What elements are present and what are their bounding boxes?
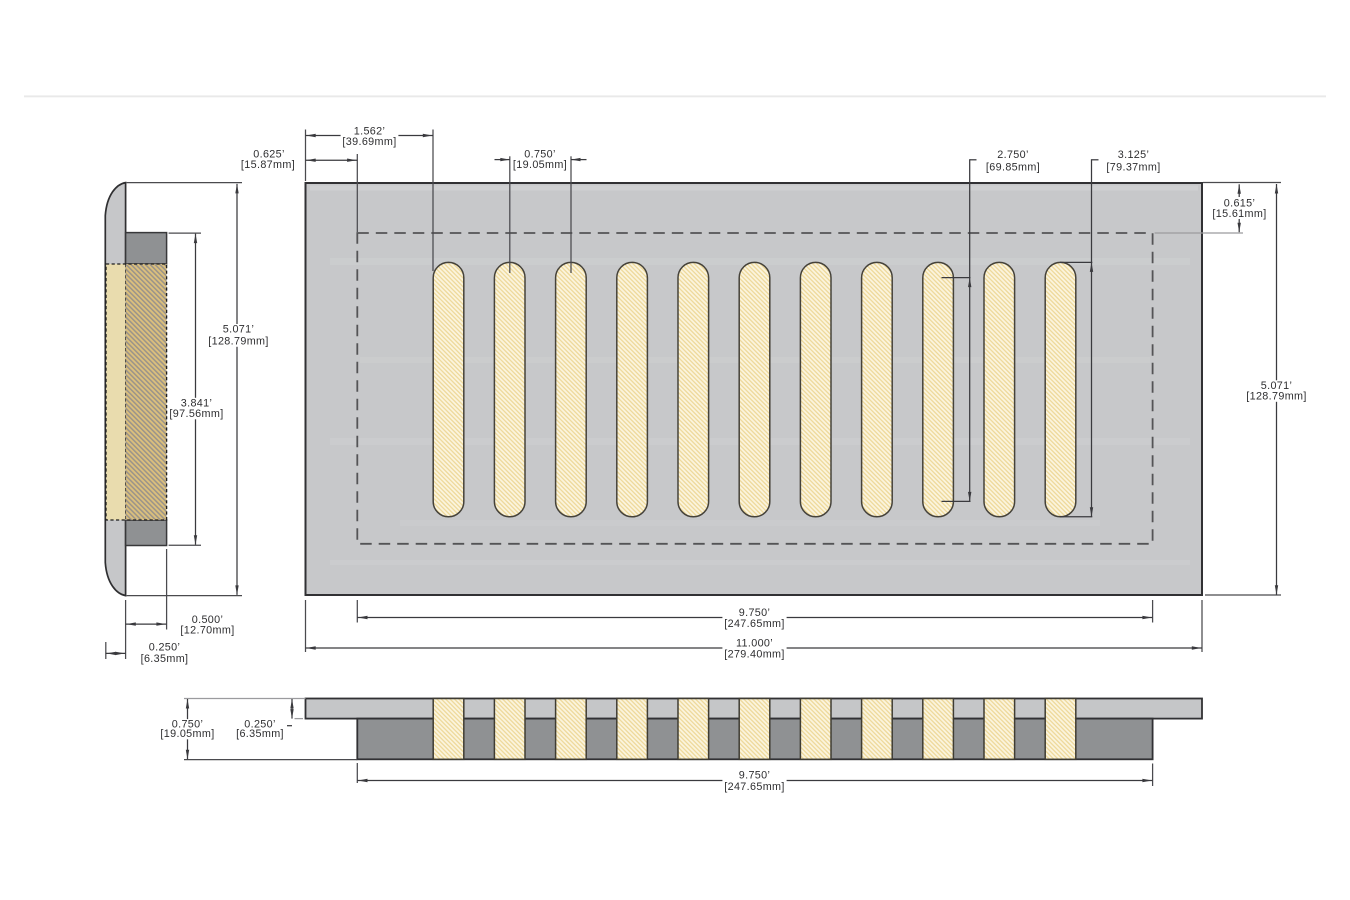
svg-text:[97.56mm]: [97.56mm] [169,408,223,420]
svg-text:[19.05mm]: [19.05mm] [513,159,567,171]
svg-text:[15.87mm]: [15.87mm] [241,159,295,171]
svg-text:[128.79mm]: [128.79mm] [1246,391,1307,403]
svg-text:[279.40mm]: [279.40mm] [724,649,785,661]
svg-text:[247.65mm]: [247.65mm] [724,781,785,793]
svg-text:[128.79mm]: [128.79mm] [208,336,269,348]
svg-text:5.071’: 5.071’ [223,324,255,336]
svg-text:2.750’: 2.750’ [997,149,1029,161]
svg-text:[79.37mm]: [79.37mm] [1106,161,1160,173]
svg-text:3.125’: 3.125’ [1118,149,1150,161]
svg-text:[15.61mm]: [15.61mm] [1212,208,1266,220]
svg-text:[19.05mm]: [19.05mm] [160,728,214,740]
svg-text:[6.35mm]: [6.35mm] [236,728,284,740]
svg-text:[6.35mm]: [6.35mm] [141,653,189,665]
svg-text:[12.70mm]: [12.70mm] [180,625,234,637]
svg-text:[39.69mm]: [39.69mm] [342,136,396,148]
svg-text:[247.65mm]: [247.65mm] [724,618,785,630]
svg-text:[69.85mm]: [69.85mm] [986,161,1040,173]
svg-text:9.750’: 9.750’ [739,770,771,782]
svg-text:0.250’: 0.250’ [149,641,181,653]
